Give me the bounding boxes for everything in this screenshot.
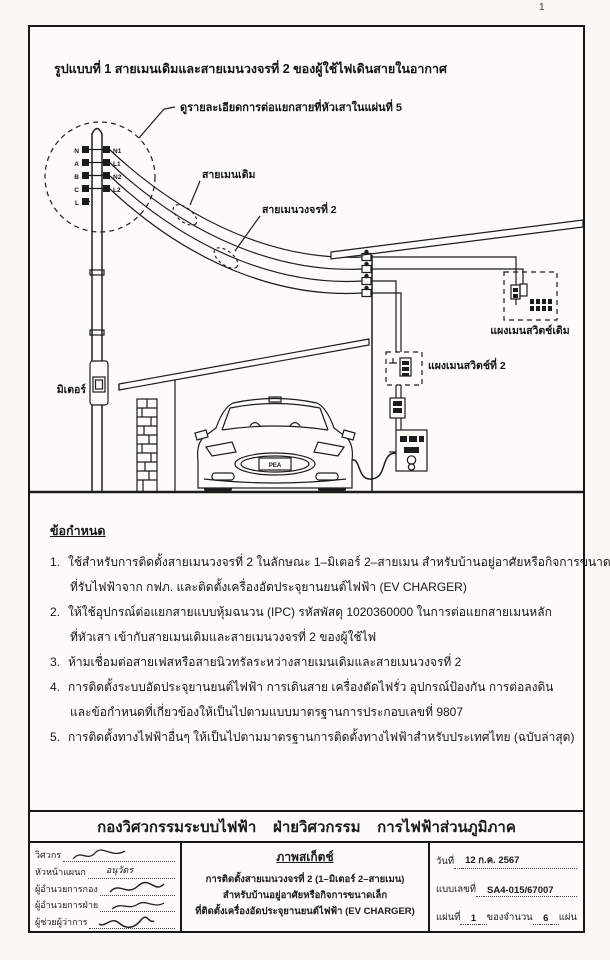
electric-car: PEA — [195, 397, 355, 491]
existing-panel-label: แผงเมนสวิตช์เดิม — [490, 324, 569, 337]
signature-row-section-chief: หัวหน้าแผนก อนุวัตร — [35, 863, 175, 879]
circuit2-run — [371, 281, 401, 352]
circuit2-main-line-label: สายเมนวงจรที่ 2 — [211, 201, 337, 272]
signature-row-assistant-governor: ผู้ช่วยผู้ว่าการ — [35, 913, 175, 929]
drawing-meta-area: วันที่ 12 ก.ค. 2567 แบบเลขที่ SA4-015/67… — [430, 843, 583, 931]
sheet-number-value: 1 — [468, 913, 479, 925]
panel2-label: แผงเมนสวิตช์ที่ 2 — [428, 357, 506, 372]
signature-squiggle — [97, 914, 157, 930]
date-row: วันที่ 12 ก.ค. 2567 — [436, 849, 577, 869]
charging-cable — [352, 453, 396, 479]
drawing-title-line3: ที่ติดตั้งเครื่องอัดประจุยานยนต์ไฟฟ้า (E… — [186, 904, 424, 920]
drawing-title-line2: สำหรับบ้านอยู่อาศัยหรือกิจการขนาดเล็ก — [186, 888, 424, 904]
scanned-drawing-page: { "page": { "corner_page_number": "1" },… — [0, 0, 610, 960]
existing-main-run — [371, 257, 523, 279]
requirement-item: 1. ใช้สำหรับการติดตั้งสายเมนวงจรที่ 2 ใน… — [50, 550, 571, 600]
requirement-item: 3. ห้ามเชื่อมต่อสายเฟสหรือสายนิวทรัลระหว… — [50, 650, 571, 675]
figure-title: รูปแบบที่ 1 สายเมนเดิมและสายเมนวงจรที่ 2… — [54, 60, 448, 77]
date-value: 12 ก.ค. 2567 — [462, 853, 522, 869]
terminal-label-c: C — [74, 187, 79, 194]
requirement-item: 2. ให้ใช้อุปกรณ์ต่อแยกสายแบบหุ้มฉนวน (IP… — [50, 600, 571, 650]
callout-note: ดูรายละเอียดการต่อแยกสายที่หัวเสาในแผ่นท… — [180, 99, 402, 115]
callout-sheet5: ดูรายละเอียดการต่อแยกสายที่หัวเสาในแผ่นท… — [139, 99, 402, 138]
signature-row-department-director: ผู้อำนวยการฝ่าย — [35, 896, 175, 912]
pole-head-detail-circle — [45, 122, 155, 232]
signature-row-division-director: ผู้อำนวยการกอง — [35, 880, 175, 896]
drawing-sheet: รูปแบบที่ 1 สายเมนเดิมและสายเมนวงจรที่ 2… — [28, 25, 585, 933]
brick-pillar — [137, 399, 157, 492]
svg-text:สายเมนเดิม: สายเมนเดิม — [202, 169, 256, 181]
requirement-item: 5. การติดตั้งทางไฟฟ้าอื่นๆ ให้เป็นไปตามม… — [50, 725, 571, 750]
signature-squiggle — [108, 897, 168, 913]
requirements-section: ข้อกำหนด 1. ใช้สำหรับการติดตั้งสายเมนวงจ… — [50, 521, 571, 750]
requirements-heading: ข้อกำหนด — [50, 521, 571, 541]
sheet-total-value: 6 — [540, 913, 551, 925]
terminal-label-n: N — [74, 148, 79, 155]
charger-feed — [390, 385, 405, 430]
meter-label: มิเตอร์ — [57, 383, 87, 396]
corner-page-number: 1 — [539, 2, 545, 13]
signature-name: อนุวัตร — [106, 863, 133, 877]
pole-terminals: N A B C L N1 L1 N2 L2 — [74, 146, 121, 207]
terminal-label-a: A — [74, 161, 79, 168]
terminal-label-l: L — [75, 200, 79, 207]
signature-column: วิศวกร หัวหน้าแผนก อนุวัตร ผู้อำนวยการกอ… — [30, 843, 182, 931]
department-banner-text: กองวิศวกรรมระบบไฟฟ้า ฝ่ายวิศวกรรม การไฟฟ… — [97, 815, 516, 839]
sheet-number-row: แผ่นที่ 1 ของจำนวน 6 แผ่น — [436, 905, 577, 925]
circuit2-main-switch-panel: แผงเมนสวิตช์ที่ 2 — [386, 352, 506, 385]
signature-squiggle — [108, 881, 168, 897]
signature-row-engineer: วิศวกร — [35, 846, 175, 862]
title-block: วิศวกร หัวหน้าแผนก อนุวัตร ผู้อำนวยการกอ… — [30, 843, 583, 931]
drawing-number-row: แบบเลขที่ SA4-015/67007 — [436, 877, 577, 897]
drawing-type-heading: ภาพสเก็ตช์ — [186, 848, 424, 867]
utility-pole — [90, 129, 104, 493]
ev-charger-box — [389, 430, 427, 471]
wiring-diagram: รูปแบบที่ 1 สายเมนเดิมและสายเมนวงจรที่ 2… — [30, 27, 583, 510]
kwh-meter: มิเตอร์ — [57, 361, 108, 405]
drawing-title-line1: การติดตั้งสายเมนวงจรที่ 2 (1–มิเตอร์ 2–ส… — [186, 872, 424, 888]
terminal-label-b: B — [74, 174, 79, 181]
signature-squiggle — [71, 847, 131, 863]
drawing-title-area: ภาพสเก็ตช์ การติดตั้งสายเมนวงจรที่ 2 (1–… — [182, 843, 430, 931]
car-license-plate: PEA — [269, 463, 282, 469]
wall-insulators — [362, 250, 371, 297]
existing-main-switch-panel: แผงเมนสวิตช์เดิม — [490, 272, 569, 337]
svg-text:สายเมนวงจรที่ 2: สายเมนวงจรที่ 2 — [262, 201, 337, 216]
department-banner: กองวิศวกรรมระบบไฟฟ้า ฝ่ายวิศวกรรม การไฟฟ… — [30, 810, 583, 843]
drawing-number-value: SA4-015/67007 — [484, 885, 557, 897]
existing-main-line-label: สายเมนเดิม — [170, 169, 256, 229]
requirement-item: 4. การติดตั้งระบบอัดประจุยานยนต์ไฟฟ้า กา… — [50, 675, 571, 725]
